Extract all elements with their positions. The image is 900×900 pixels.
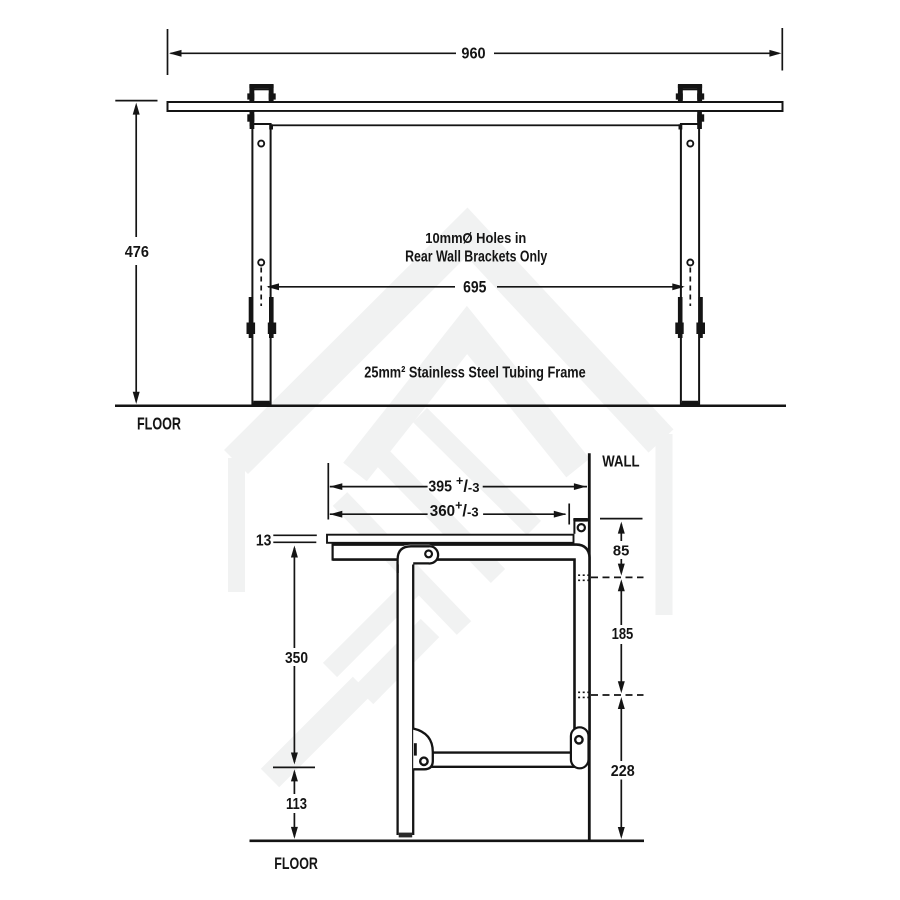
svg-text:13: 13 <box>256 532 272 549</box>
svg-text:228: 228 <box>611 763 635 780</box>
svg-text:695: 695 <box>463 279 486 297</box>
svg-text:185: 185 <box>612 626 634 643</box>
svg-text:476: 476 <box>125 244 149 261</box>
svg-text:85: 85 <box>613 543 629 560</box>
svg-text:25mm² Stainless Steel Tubing F: 25mm² Stainless Steel Tubing Frame <box>364 364 585 381</box>
svg-text:WALL: WALL <box>602 453 639 470</box>
svg-text:960: 960 <box>461 46 485 63</box>
svg-text:FLOOR: FLOOR <box>137 414 181 434</box>
svg-text:Rear Wall Brackets Only: Rear Wall Brackets Only <box>405 248 547 265</box>
svg-text:350: 350 <box>285 650 308 667</box>
svg-text:FLOOR: FLOOR <box>274 854 318 873</box>
svg-text:10mmØ Holes in: 10mmØ Holes in <box>425 230 526 247</box>
svg-text:113: 113 <box>286 796 307 813</box>
